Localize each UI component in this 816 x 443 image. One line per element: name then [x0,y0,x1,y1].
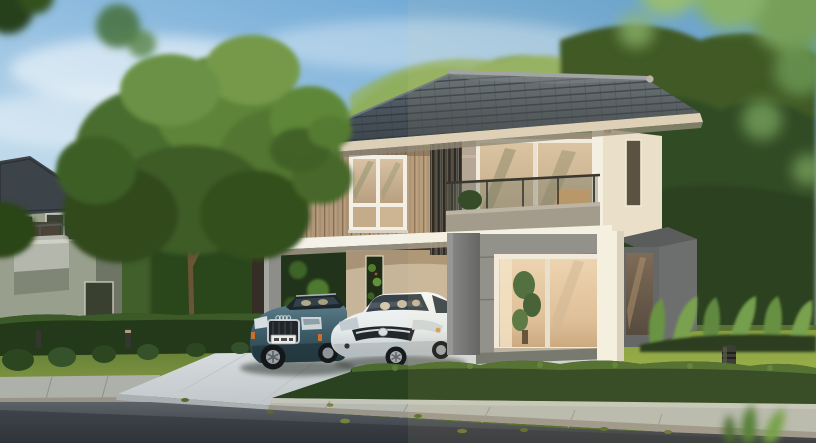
hatchback-badge [378,328,387,336]
suv-wheel-left [261,345,286,370]
scene-canvas [0,0,816,443]
hatchback-fog-light [344,343,349,348]
suv-reflector-left [251,332,255,339]
neighbour-window-lower [85,282,113,318]
architectural-rendering [0,0,816,443]
upper-window [348,155,408,233]
warm-light-wash [408,0,816,443]
suv-reflector-right [318,334,322,341]
